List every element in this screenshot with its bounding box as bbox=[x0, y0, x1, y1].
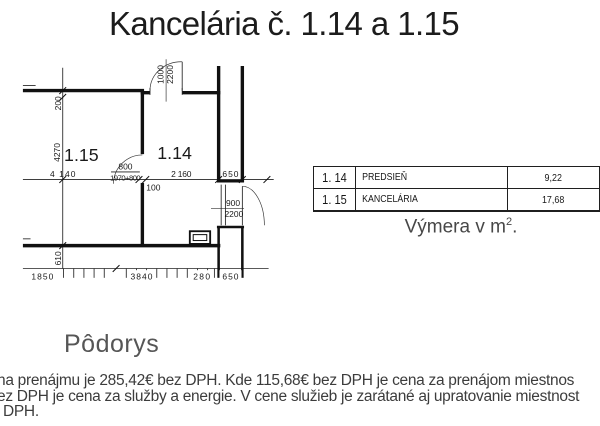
paragraph-line: ez DPH je cena za služby a energie. V ce… bbox=[0, 389, 600, 405]
window-symbol bbox=[190, 231, 210, 244]
dim-door-right-width: 900 bbox=[226, 198, 240, 208]
dim-610: 610 bbox=[53, 251, 63, 265]
dim-100: 100 bbox=[146, 183, 160, 193]
area-table: 1. 14 PREDSIEŇ 9,22 1. 15 KANCELÁRIA 17,… bbox=[313, 166, 600, 212]
paragraph-line: na prenájmu je 285,42€ bez DPH. Kde 115,… bbox=[0, 373, 600, 389]
room-name-cell: KANCELÁRIA bbox=[356, 189, 508, 212]
dim-4270: 4270 bbox=[52, 143, 62, 162]
page-title: Kancelária č. 1.14 a 1.15 bbox=[0, 5, 568, 43]
dim-650-bottom: 650 bbox=[222, 272, 238, 282]
price-paragraph: na prenájmu je 285,42€ bez DPH. Kde 115,… bbox=[0, 373, 600, 420]
dim-800: 800 bbox=[118, 161, 132, 171]
paragraph-line: DPH. bbox=[0, 404, 600, 420]
dim-1850: 1850 bbox=[31, 272, 53, 282]
room-name-cell: PREDSIEŇ bbox=[356, 167, 508, 189]
table-row: 1. 15 KANCELÁRIA 17,68 bbox=[314, 189, 600, 212]
floor-plan-drawing: 1.15 1.14 200 4270 610 4 140 800 1970+80… bbox=[0, 55, 300, 360]
plan-caption: Pôdorys bbox=[64, 330, 159, 359]
dim-280: 280 bbox=[193, 272, 210, 282]
room-number-cell: 1. 15 bbox=[314, 189, 356, 212]
area-caption: Výmera v m2. bbox=[386, 216, 536, 238]
room-area-cell: 17,68 bbox=[508, 189, 600, 212]
room-label-115: 1.15 bbox=[64, 145, 99, 165]
table-row: 1. 14 PREDSIEŇ 9,22 bbox=[314, 167, 600, 189]
room-area-cell: 9,22 bbox=[508, 167, 600, 189]
dim-1970-800: 1970+800 bbox=[110, 173, 141, 182]
dim-650-top: 650 bbox=[222, 169, 238, 179]
dim-3840: 3840 bbox=[131, 272, 153, 282]
dim-2160: 2 160 bbox=[171, 169, 192, 179]
room-label-114: 1.14 bbox=[157, 143, 192, 163]
room-number-cell: 1. 14 bbox=[314, 167, 356, 189]
dim-door-right-height: 2200 bbox=[224, 209, 243, 219]
page: { "title": "Kancelária č. 1.14 a 1.15", … bbox=[0, 0, 600, 426]
dim-4140: 4 140 bbox=[50, 169, 76, 179]
dim-door-top-height: 2200 bbox=[165, 65, 175, 84]
dim-200: 200 bbox=[53, 96, 63, 110]
